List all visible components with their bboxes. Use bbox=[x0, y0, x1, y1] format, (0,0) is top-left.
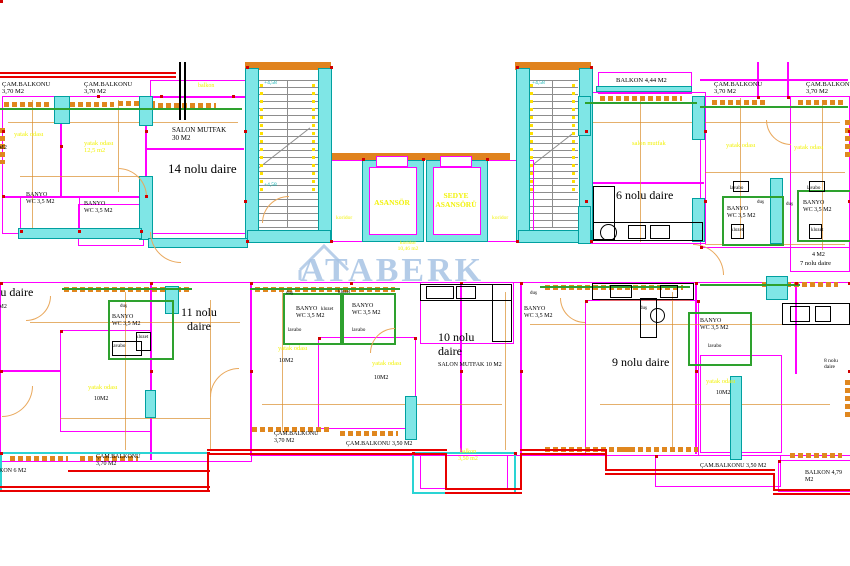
fixture-label: klozet bbox=[321, 307, 333, 313]
area-label: 10M2 bbox=[279, 358, 293, 365]
window-hatch bbox=[4, 102, 52, 107]
balcony-label: balkon 3,50 m2 bbox=[448, 449, 488, 463]
apartment-label: 6 nolu daire bbox=[616, 189, 673, 203]
wall-segment bbox=[516, 68, 530, 242]
elevator-label: ASANSÖR bbox=[362, 199, 422, 208]
red-boundary-line bbox=[0, 490, 210, 492]
kitchen-counter bbox=[815, 306, 831, 322]
dimension-line bbox=[640, 98, 641, 242]
apartment-label: 10 nolu daire bbox=[438, 331, 474, 359]
wall-segment bbox=[245, 68, 259, 242]
fixture-label: duş bbox=[757, 200, 764, 206]
room-label: koridor bbox=[492, 215, 508, 221]
level-mark: +4,58 bbox=[264, 182, 277, 188]
red-boundary-line bbox=[445, 492, 522, 494]
apartment-label: 9 nolu daire bbox=[612, 356, 669, 370]
fixture-label: lavabo bbox=[288, 328, 301, 334]
room-label: BANYO WC 3,5 M2 bbox=[352, 303, 381, 317]
wall-line bbox=[62, 288, 192, 290]
room-label: yatak odası bbox=[706, 378, 735, 385]
balcony-label: ÇAM.BALKONU 3,70 M2 bbox=[2, 81, 50, 96]
room-label: BANYO WC 3,5 M2 bbox=[26, 192, 55, 206]
room-outline bbox=[330, 160, 364, 242]
stair-dimension-dashes bbox=[572, 84, 575, 196]
kitchen-counter bbox=[660, 285, 678, 298]
dimension-line bbox=[32, 100, 33, 230]
wall-line bbox=[184, 62, 186, 120]
stair-dimension-dashes bbox=[312, 84, 315, 196]
window-hatch bbox=[798, 100, 844, 105]
red-boundary-line bbox=[605, 473, 775, 475]
balcony-label: ÇAM.BALKONU 3,70 M2 bbox=[714, 81, 762, 96]
dimension-line bbox=[600, 404, 830, 405]
red-boundary-line bbox=[0, 76, 176, 78]
room-label: yatak odası bbox=[14, 131, 43, 138]
window-hatch bbox=[845, 380, 850, 420]
stair-centerline bbox=[552, 80, 553, 228]
apartment-label: 8 nolu daire bbox=[824, 358, 850, 371]
balcony-label: balkon bbox=[198, 83, 214, 90]
room-label: BANYO WC 3,5 M2 bbox=[524, 306, 553, 320]
wall-line bbox=[145, 148, 244, 150]
room-label: BANYO WC 3,5 M2 bbox=[727, 206, 756, 220]
window-hatch bbox=[790, 453, 842, 458]
room-label: BANYO WC 3,5 M2 bbox=[700, 318, 729, 332]
fixture-label: lavabo bbox=[708, 344, 721, 350]
red-boundary-line bbox=[207, 453, 209, 490]
wall-segment bbox=[318, 68, 332, 242]
kitchen-counter bbox=[650, 225, 670, 239]
fixture-label: duş bbox=[286, 291, 293, 297]
wall-segment bbox=[766, 276, 788, 300]
fixture-label: klozet bbox=[731, 228, 743, 234]
wall-line bbox=[695, 282, 697, 454]
red-boundary-line bbox=[445, 453, 447, 490]
room-outline bbox=[655, 455, 781, 487]
wall-line bbox=[700, 106, 848, 108]
apartment-label: 11 nolu daire bbox=[176, 306, 222, 334]
fixture-label: duş bbox=[120, 304, 127, 310]
window-hatch bbox=[600, 96, 682, 101]
wall-segment bbox=[730, 376, 742, 460]
fixture-label: duş bbox=[640, 306, 647, 312]
room-label: SALON MUTFAK 30 M2 bbox=[172, 126, 226, 142]
red-boundary-line bbox=[207, 449, 447, 451]
door-arc bbox=[693, 244, 724, 275]
area-label: 10M2 bbox=[716, 390, 730, 397]
room-label: yatak odası bbox=[794, 144, 823, 151]
wall-segment bbox=[405, 396, 417, 440]
balcony-label: ÇAM.BALKONU 3,50 M2 bbox=[700, 463, 766, 470]
wall-line bbox=[585, 182, 704, 184]
room-label: yatak odası bbox=[88, 384, 117, 391]
elevator-label: SEDYE ASANSÖRÜ bbox=[426, 192, 486, 209]
red-boundary-line bbox=[605, 449, 607, 471]
dimension-line bbox=[672, 292, 673, 450]
wall-line bbox=[787, 62, 789, 96]
balcony-label: ÇAM.BALKONU 3,70 M2 bbox=[84, 81, 132, 96]
wall-line bbox=[0, 108, 242, 110]
cooktop-circle bbox=[650, 308, 665, 323]
area-label: 4 M2 bbox=[812, 252, 825, 259]
wall-segment bbox=[596, 86, 692, 92]
wall-band bbox=[332, 153, 510, 160]
room-label: BANYO WC 3,5 M2 bbox=[84, 201, 113, 215]
watermark: ATABERK bbox=[294, 238, 478, 276]
elevator-door bbox=[440, 156, 472, 167]
wall-segment bbox=[54, 96, 70, 124]
balcony-label: BALKON 6 M2 bbox=[0, 468, 26, 475]
area-label: 6 M2 bbox=[0, 304, 7, 311]
cooktop-circle bbox=[600, 224, 617, 241]
area-label: 10M2 bbox=[374, 375, 388, 382]
fixture-label: lavabo bbox=[807, 186, 820, 192]
red-boundary-line bbox=[0, 486, 210, 488]
room-label: yatak odası bbox=[372, 360, 401, 367]
stair-dimension-dashes bbox=[260, 84, 263, 196]
door-arc bbox=[150, 232, 181, 263]
balcony-label: ÇAM.BALKONU 3,50 M2 bbox=[346, 441, 412, 448]
red-boundary-line bbox=[445, 488, 522, 490]
red-boundary-line bbox=[520, 453, 607, 455]
window-hatch bbox=[845, 120, 850, 160]
watermark-text: ATABERK bbox=[300, 252, 484, 290]
tick-marks bbox=[0, 0, 3, 3]
balcony-label: ÇAM.BALKONU 3,70 M2 bbox=[96, 454, 141, 468]
stairwell bbox=[528, 80, 578, 228]
room-outline bbox=[318, 337, 416, 429]
red-boundary-line bbox=[773, 493, 850, 495]
bathroom-outline bbox=[797, 190, 850, 242]
room-label: BANYO WC 3,5 M2 bbox=[112, 314, 141, 328]
apartment-label: 12 nolu daire bbox=[0, 286, 33, 300]
fixture-label: lavabo bbox=[112, 344, 125, 350]
fixture-label: duş bbox=[786, 202, 793, 208]
red-boundary-line bbox=[520, 449, 607, 451]
dimension-line bbox=[8, 122, 238, 123]
area-label: 10M2 bbox=[94, 396, 108, 403]
stair-dimension-dashes bbox=[530, 84, 533, 196]
apartment-label: 14 nolu daire bbox=[168, 162, 237, 177]
room-label: koridor bbox=[336, 215, 352, 221]
room-label: yatak odası bbox=[278, 345, 307, 352]
level-mark: +4,58 bbox=[532, 80, 545, 86]
wall-segment bbox=[18, 228, 142, 239]
dimension-line bbox=[262, 404, 502, 405]
wall-line bbox=[0, 370, 60, 372]
dimension-line bbox=[590, 122, 840, 123]
wall-segment bbox=[145, 390, 156, 418]
kitchen-counter bbox=[492, 284, 512, 342]
window-hatch bbox=[340, 431, 398, 436]
red-boundary-line bbox=[0, 72, 176, 74]
wall-segment bbox=[139, 96, 153, 126]
wall-line bbox=[179, 62, 181, 120]
level-mark: +4,58 bbox=[264, 80, 277, 86]
balcony-label: ÇAM.BALKONU 3,70 M2 bbox=[806, 81, 850, 96]
kitchen-counter bbox=[790, 306, 810, 322]
dimension-line bbox=[705, 172, 845, 173]
balcony-label: BALKON 4,79 M2 bbox=[805, 470, 850, 484]
red-boundary-line bbox=[773, 489, 850, 491]
elevator-door bbox=[376, 156, 408, 167]
room-label: salon mutfak bbox=[632, 140, 666, 147]
dimension-line bbox=[60, 418, 210, 419]
fixture-label: duş bbox=[530, 291, 537, 297]
fixture-label: lavabo bbox=[730, 186, 743, 192]
fixture-label: lavabo bbox=[352, 328, 365, 334]
kitchen-counter bbox=[610, 285, 632, 298]
room-label: yatak odası bbox=[726, 142, 755, 149]
fixture-label: klozet bbox=[338, 290, 350, 296]
wall-line bbox=[585, 102, 697, 104]
wall-segment bbox=[578, 206, 591, 244]
apartment-label: 7 nolu daire bbox=[800, 260, 831, 267]
floor-plan: ATABERK ÇAM.BALKONU 3,70 M2ÇAM.BALKONU 3… bbox=[0, 0, 850, 566]
area-label: 30 M2 bbox=[0, 145, 7, 152]
red-boundary-line bbox=[520, 453, 522, 490]
room-label: yatak odası 12,5 m2 bbox=[84, 140, 113, 155]
wall-line bbox=[700, 284, 800, 286]
wall-line bbox=[795, 282, 797, 374]
window-hatch bbox=[622, 447, 698, 452]
kitchen-counter bbox=[628, 225, 646, 239]
fixture-label: klozet bbox=[136, 335, 148, 341]
fixture-label: klozet bbox=[811, 228, 823, 234]
red-boundary-line bbox=[207, 453, 447, 455]
balcony-label: BALKON 4,44 M2 bbox=[616, 77, 667, 84]
room-label: BANYO WC 3,5 M2 bbox=[803, 200, 832, 214]
balcony-label: ÇAM.BALKONU 3,70 M2 bbox=[274, 431, 319, 445]
red-boundary-line bbox=[68, 470, 210, 472]
room-label: SALON MUTFAK 10 M2 bbox=[438, 362, 502, 369]
